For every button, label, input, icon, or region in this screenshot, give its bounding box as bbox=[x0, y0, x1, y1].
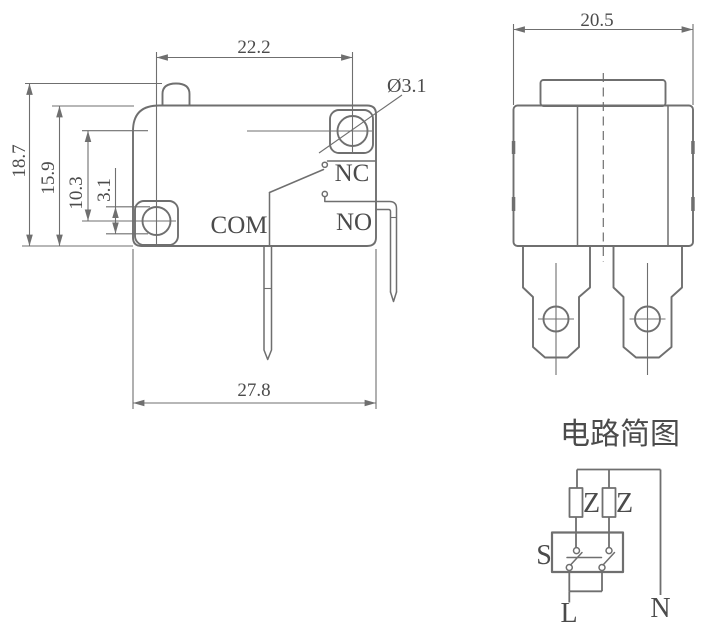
dim-text-3-1: 3.1 bbox=[94, 178, 115, 202]
label-com: COM bbox=[211, 212, 268, 239]
edge-notch bbox=[691, 141, 695, 154]
dim-text-27-8: 27.8 bbox=[237, 380, 270, 401]
circuit-diagram: 电路简图 Z Z S L N bbox=[536, 418, 680, 629]
contact-top-2 bbox=[606, 548, 612, 554]
circuit-title: 电路简图 bbox=[560, 418, 680, 451]
resistor-1-label: Z bbox=[583, 488, 600, 519]
no-contact-point bbox=[322, 191, 327, 196]
dim-text-20-5: 20.5 bbox=[580, 10, 613, 31]
resistor-1 bbox=[570, 488, 583, 517]
edge-notch bbox=[691, 197, 695, 211]
dim-text-hole-dia: Ø3.1 bbox=[387, 75, 426, 97]
label-nc: NC bbox=[335, 160, 370, 187]
switch-blade-2 bbox=[603, 553, 615, 566]
neutral-label: N bbox=[650, 593, 670, 624]
side-view: 20.5 bbox=[512, 10, 695, 375]
com-terminal-pin bbox=[264, 246, 272, 360]
contact-lever bbox=[270, 170, 324, 193]
plunger-button bbox=[163, 84, 190, 106]
nc-contact-point bbox=[322, 162, 327, 167]
no-terminal-outer bbox=[376, 202, 397, 293]
dim-text-22-2: 22.2 bbox=[237, 37, 270, 58]
switch-blade-1 bbox=[571, 553, 583, 566]
edge-notch bbox=[512, 141, 516, 154]
microswitch-drawing: NC NO COM 22.2 27.8 Ø3.1 18.7 15.9 10.3 … bbox=[0, 0, 720, 632]
no-terminal-tip bbox=[391, 292, 397, 302]
contact-top-1 bbox=[574, 548, 580, 554]
front-view: NC NO COM bbox=[82, 52, 397, 360]
resistor-2 bbox=[603, 488, 616, 517]
contact-pivot-1 bbox=[566, 565, 572, 571]
edge-notch bbox=[512, 197, 516, 211]
dim-text-18-7: 18.7 bbox=[9, 144, 30, 177]
dim-text-15-9: 15.9 bbox=[38, 161, 59, 194]
dim-text-10-3: 10.3 bbox=[66, 176, 87, 209]
resistor-2-label: Z bbox=[616, 488, 633, 519]
drawing-canvas: NC NO COM 22.2 27.8 Ø3.1 18.7 15.9 10.3 … bbox=[0, 0, 720, 632]
contact-pivot-2 bbox=[599, 565, 605, 571]
no-contact-bar bbox=[325, 197, 376, 202]
label-no: NO bbox=[336, 209, 372, 236]
switch-label: S bbox=[536, 540, 552, 571]
no-terminal-inner bbox=[376, 210, 391, 293]
line-label: L bbox=[560, 598, 577, 629]
